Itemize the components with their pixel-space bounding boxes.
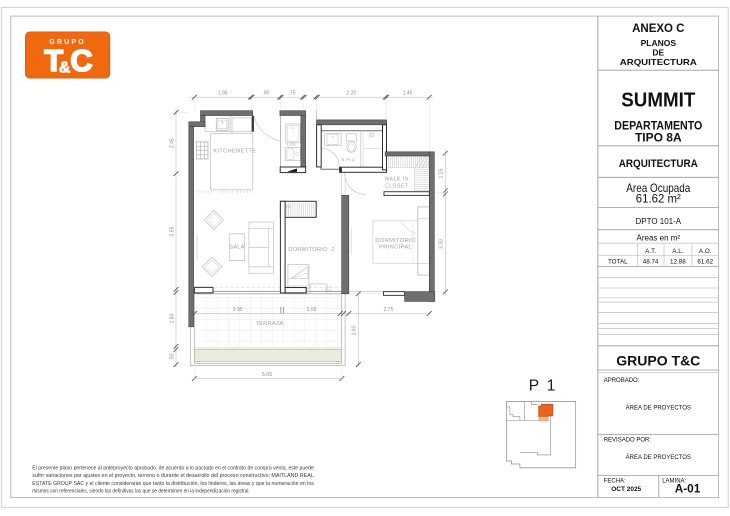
svg-text:&: & xyxy=(59,60,71,77)
svg-text:DPTO 101-A: DPTO 101-A xyxy=(635,217,681,226)
svg-text:DORMITORIO: DORMITORIO xyxy=(375,238,416,244)
svg-text:A-01: A-01 xyxy=(675,481,701,495)
svg-text:sufrir variaciones por ajustes: sufrir variaciones por ajustes en el pro… xyxy=(32,473,314,479)
svg-text:2.00: 2.00 xyxy=(307,307,317,313)
svg-text:.90: .90 xyxy=(262,91,269,97)
svg-text:1.45: 1.45 xyxy=(403,91,413,97)
svg-text:61.62: 61.62 xyxy=(697,259,713,266)
svg-text:1.80: 1.80 xyxy=(169,314,175,324)
svg-text:1.98: 1.98 xyxy=(218,91,228,97)
svg-text:2.45: 2.45 xyxy=(169,138,175,148)
svg-text:KITCHENETTE: KITCHENETTE xyxy=(213,149,256,155)
svg-text:El presente plano pertenece al: El presente plano pertenece al anteproye… xyxy=(32,466,314,472)
svg-text:CL: CL xyxy=(286,204,292,209)
svg-text:S.H.1: S.H.1 xyxy=(341,157,355,163)
svg-text:DORMITORIO 2: DORMITORIO 2 xyxy=(288,247,335,253)
svg-text:ÁREA DE PROYECTOS: ÁREA DE PROYECTOS xyxy=(626,404,691,411)
svg-text:LAV: LAV xyxy=(287,141,296,146)
svg-text:DE: DE xyxy=(652,48,664,58)
svg-text:TIPO 8A: TIPO 8A xyxy=(635,131,682,145)
svg-text:3.55: 3.55 xyxy=(169,226,175,236)
svg-text:APROBADO:: APROBADO: xyxy=(604,378,640,384)
svg-text:12.88: 12.88 xyxy=(670,259,686,266)
svg-text:A.T.: A.T. xyxy=(645,248,656,255)
svg-text:WALK IN: WALK IN xyxy=(385,177,410,183)
svg-text:.50: .50 xyxy=(169,353,175,360)
svg-text:REVISADO POR:: REVISADO POR: xyxy=(604,438,652,444)
svg-text:48.74: 48.74 xyxy=(643,259,659,266)
svg-text:ARQUITECTURA: ARQUITECTURA xyxy=(620,57,697,67)
svg-text:5.05: 5.05 xyxy=(262,372,273,378)
svg-text:SALA: SALA xyxy=(229,244,244,250)
svg-text:ÁREA DE PROYECTOS: ÁREA DE PROYECTOS xyxy=(626,454,691,461)
svg-text:2.75: 2.75 xyxy=(384,307,394,313)
svg-text:GRUPO T&C: GRUPO T&C xyxy=(616,353,700,369)
svg-text:PLANOS: PLANOS xyxy=(641,38,677,48)
svg-text:2.95: 2.95 xyxy=(233,307,243,313)
svg-text:A.O.: A.O. xyxy=(699,248,712,255)
svg-text:61.62 m²: 61.62 m² xyxy=(636,192,681,206)
svg-text:A.L.: A.L. xyxy=(672,248,683,255)
svg-text:TOTAL: TOTAL xyxy=(608,259,628,266)
svg-text:Areas en m²: Areas en m² xyxy=(637,234,681,243)
svg-text:SUMMIT: SUMMIT xyxy=(621,90,695,112)
svg-text:P 1: P 1 xyxy=(529,377,557,394)
svg-text:2.20: 2.20 xyxy=(346,91,356,97)
svg-text:FECHA:: FECHA: xyxy=(604,479,626,485)
svg-text:TERRAZA: TERRAZA xyxy=(255,321,283,327)
svg-text:mismos son referenciales, sien: mismos son referenciales, siendo las def… xyxy=(32,488,250,494)
svg-text:CLOSET: CLOSET xyxy=(385,183,409,189)
svg-text:PRINCIPAL: PRINCIPAL xyxy=(379,245,412,251)
svg-text:2.40: 2.40 xyxy=(352,325,358,335)
svg-text:ARQUITECTURA: ARQUITECTURA xyxy=(619,158,698,170)
svg-text:ANEXO C: ANEXO C xyxy=(632,23,684,35)
svg-text:ESTATE GROUP SAC y el cliente: ESTATE GROUP SAC y el cliente considerar… xyxy=(32,481,314,487)
svg-text:3.30: 3.30 xyxy=(439,239,445,249)
svg-text:C: C xyxy=(70,43,92,78)
svg-text:.75: .75 xyxy=(289,91,296,97)
svg-text:OCT 2025: OCT 2025 xyxy=(611,486,641,493)
svg-text:1.25: 1.25 xyxy=(439,168,445,178)
